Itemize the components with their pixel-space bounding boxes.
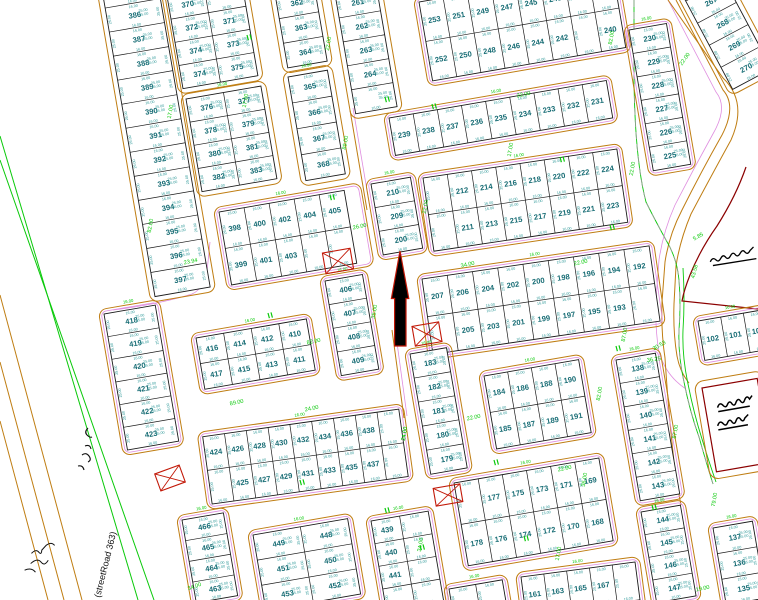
svg-text:199: 199 [537, 313, 551, 324]
svg-text:434: 434 [318, 431, 333, 442]
svg-text:217: 217 [533, 211, 547, 222]
svg-text:195: 195 [587, 306, 602, 317]
svg-text:200: 200 [531, 276, 545, 287]
svg-text:426: 426 [231, 444, 245, 455]
svg-text:436: 436 [340, 428, 354, 439]
svg-text:435: 435 [344, 462, 359, 473]
svg-text:218: 218 [528, 175, 542, 186]
svg-text:196: 196 [582, 268, 596, 279]
svg-text:431: 431 [301, 468, 316, 479]
svg-text:222: 222 [576, 167, 590, 178]
svg-text:205: 205 [461, 324, 476, 335]
svg-text:25.00: 25.00 [372, 0, 378, 4]
svg-text:220: 220 [552, 171, 566, 182]
svg-text:202: 202 [506, 279, 520, 290]
svg-text:201: 201 [512, 317, 527, 328]
svg-text:25.00: 25.00 [206, 0, 212, 6]
svg-text:428: 428 [253, 440, 267, 451]
svg-text:16.00: 16.00 [741, 597, 751, 600]
svg-text:198: 198 [557, 272, 571, 283]
svg-text:192: 192 [632, 261, 646, 272]
svg-text:425: 425 [236, 477, 251, 488]
svg-text:213: 213 [485, 218, 499, 229]
svg-text:216: 216 [504, 178, 518, 189]
svg-text:223: 223 [606, 200, 620, 211]
svg-text:165: 165 [574, 583, 589, 594]
svg-text:432: 432 [296, 434, 310, 445]
svg-text:433: 433 [323, 465, 337, 476]
svg-text:207: 207 [430, 290, 444, 301]
svg-text:424: 424 [209, 446, 224, 457]
svg-text:203: 203 [486, 321, 500, 332]
svg-text:161: 161 [528, 589, 543, 600]
svg-text:167: 167 [596, 580, 610, 591]
svg-text:437: 437 [366, 459, 380, 470]
svg-text:438: 438 [362, 425, 376, 436]
svg-text:100: 100 [751, 325, 758, 336]
svg-text:194: 194 [607, 265, 622, 276]
svg-text:429: 429 [279, 471, 293, 482]
svg-text:163: 163 [551, 586, 565, 597]
svg-text:204: 204 [481, 283, 496, 294]
svg-text:25.00: 25.00 [543, 0, 549, 5]
svg-text:25.00: 25.00 [567, 0, 573, 1]
svg-text:211: 211 [461, 222, 475, 233]
svg-text:212: 212 [455, 185, 469, 196]
svg-text:427: 427 [257, 474, 271, 485]
svg-text:197: 197 [562, 310, 576, 321]
svg-text:219: 219 [558, 207, 572, 218]
svg-text:430: 430 [274, 437, 288, 448]
svg-text:16.00: 16.00 [623, 596, 633, 600]
svg-text:193: 193 [612, 302, 626, 313]
svg-text:206: 206 [456, 287, 470, 298]
